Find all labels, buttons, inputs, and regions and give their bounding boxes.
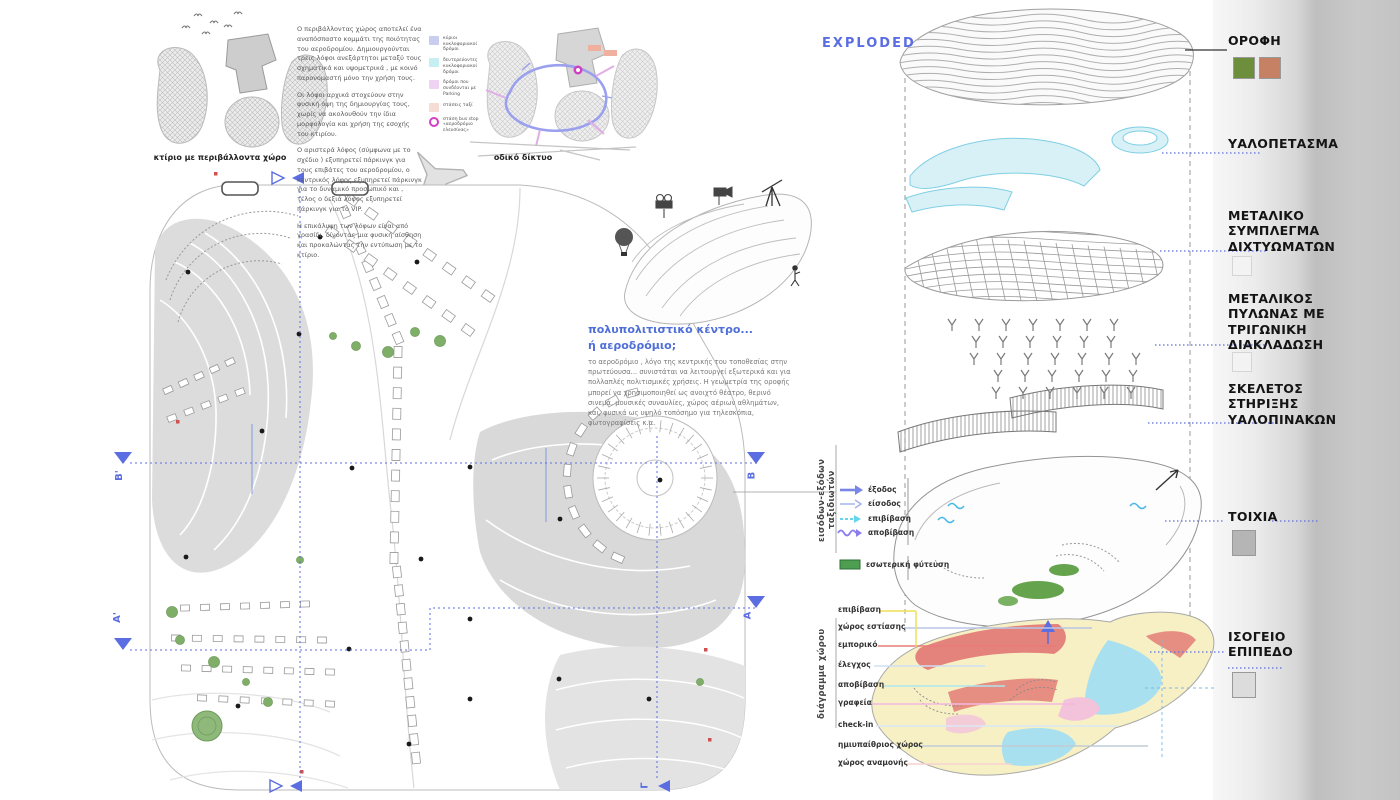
brick-swatch bbox=[1259, 57, 1281, 79]
section-gamma: Γ bbox=[640, 782, 651, 788]
road-swatch bbox=[429, 36, 439, 45]
gl-checkin: check-in bbox=[838, 720, 873, 729]
flow-deboarding-label: αποβίβαση bbox=[868, 528, 914, 537]
concept-body: το αεροδρόμιο , λόγο της κεντρικής του τ… bbox=[588, 357, 793, 428]
gl-boarding: επιβίβαση bbox=[838, 605, 881, 614]
label-pylon: ΜΕΤΑΛΙΚΟΣ ΠΥΛΩΝΑΣ ΜΕ ΤΡΙΓΩΝΙΚΗ ΔΙΑΚΛΑΔΩΣ… bbox=[1228, 291, 1325, 352]
flow-boarding-label: επιβίβαση bbox=[868, 514, 911, 523]
caption-building-context: κτίριο με περιβάλλοντα χώρο bbox=[150, 153, 290, 162]
concept-subtitle: ή αεροδρόμιο; bbox=[588, 339, 793, 352]
gl-waiting: χώρος αναμονής bbox=[838, 758, 908, 767]
road-swatch bbox=[429, 80, 439, 89]
legend-item: δρόμοι που συνδέονται με Parking bbox=[429, 80, 491, 97]
planting-label: εσωτερική φύτευση bbox=[866, 560, 949, 569]
flow-entry-label: είσοδος bbox=[868, 499, 901, 508]
gl-dining: χώρος εστίασης bbox=[838, 622, 905, 631]
paragraph: Οι λόφοι αρχικά στοχεύουν στην φυσική όψ… bbox=[297, 91, 423, 140]
legend-item: στάσεις ταξί bbox=[429, 103, 491, 112]
concrete-light-swatch bbox=[1232, 672, 1256, 698]
gl-semiopen: ημιυπαίθριος χώρος bbox=[838, 740, 923, 749]
label-skeleton: ΣΚΕΛΕΤΟΣ ΣΤΗΡΙΞΗΣ ΥΑΛΟΠΙΝΑΚΩΝ bbox=[1228, 381, 1336, 427]
walls-layer bbox=[894, 456, 1201, 627]
site-description: Ο περιβάλλοντας χώρος αποτελεί ένα αναπό… bbox=[297, 25, 423, 268]
paragraph: Ο αριστερά λόφος (σύμφωνα με το σχέδιο )… bbox=[297, 146, 423, 214]
ground-layer bbox=[872, 612, 1215, 775]
bus-stop-icon bbox=[429, 117, 439, 127]
section-a-prime: Α' bbox=[112, 612, 123, 623]
gl-deboarding: αποβίβαση bbox=[838, 680, 884, 689]
exploded-title: EXPLODED bbox=[822, 36, 916, 51]
label-metal-mesh: ΜΕΤΑΛΙΚΟ ΣΥΜΠΛΕΓΜΑ ΔΙΧΤΥΩΜΑΤΩΝ bbox=[1228, 208, 1335, 254]
paragraph: Ο περιβάλλοντας χώρος αποτελεί ένα αναπό… bbox=[297, 25, 423, 84]
birds-icon bbox=[182, 12, 242, 34]
label-groundfloor: ΙΣΟΓΕΙΟ ΕΠΙΠΕΔΟ bbox=[1228, 629, 1293, 660]
presentation-board: Ο περιβάλλοντας χώρος αποτελεί ένα αναπό… bbox=[0, 0, 1400, 800]
label-curtainwall: ΥΑΛΟΠΕΤΑΣΜΑ bbox=[1228, 136, 1338, 151]
mesh-swatch bbox=[1232, 256, 1252, 276]
gl-offices: γραφεία bbox=[838, 698, 872, 707]
flow-exit-label: έξοδος bbox=[868, 485, 897, 494]
gl-retail: εμπορικό bbox=[838, 640, 878, 649]
paragraph: Η επικάλυψη των λόφων είναι από γρασίδι,… bbox=[297, 222, 423, 261]
road-swatch bbox=[429, 58, 439, 67]
section-b-prime: Β' bbox=[114, 470, 125, 481]
road-legend: κύριοι κυκλοφοριακοί δρόμοι δευτερεύοντε… bbox=[429, 36, 491, 139]
pylon-swatch bbox=[1232, 352, 1252, 372]
legend-item: στάση bus stop «αεροδρόμιο ελευσίνας» bbox=[429, 117, 491, 134]
vertical-label-travellers: εισόδων-εξόδων ταξιδιωτών bbox=[817, 440, 833, 560]
glass-layer bbox=[906, 127, 1168, 212]
legend-item: δευτερεύοντες κυκλοφοριακοί δρόμοι bbox=[429, 58, 491, 75]
concept-title: πολυπολιτιστικό κέντρο... bbox=[588, 323, 793, 336]
concept-text: πολυπολιτιστικό κέντρο... ή αεροδρόμιο; … bbox=[588, 323, 793, 428]
caption-road-network: οδικό δίκτυο bbox=[468, 153, 578, 162]
legend-item: κύριοι κυκλοφοριακοί δρόμοι bbox=[429, 36, 491, 53]
exploded-stack bbox=[872, 9, 1215, 775]
grass-swatch bbox=[1233, 57, 1255, 79]
section-b: Β bbox=[746, 472, 757, 480]
section-a: Α bbox=[742, 612, 753, 620]
road-swatch bbox=[429, 103, 439, 112]
concrete-swatch bbox=[1232, 530, 1256, 556]
vertical-label-diagram: διάγραμμα χώρου bbox=[817, 616, 833, 732]
label-walls: ΤΟΙΧΙΑ bbox=[1228, 509, 1278, 524]
gl-control: έλεγχος bbox=[838, 660, 871, 669]
label-roof: ΟΡΟΦΗ bbox=[1228, 33, 1281, 48]
skeleton-layer bbox=[898, 385, 1163, 452]
